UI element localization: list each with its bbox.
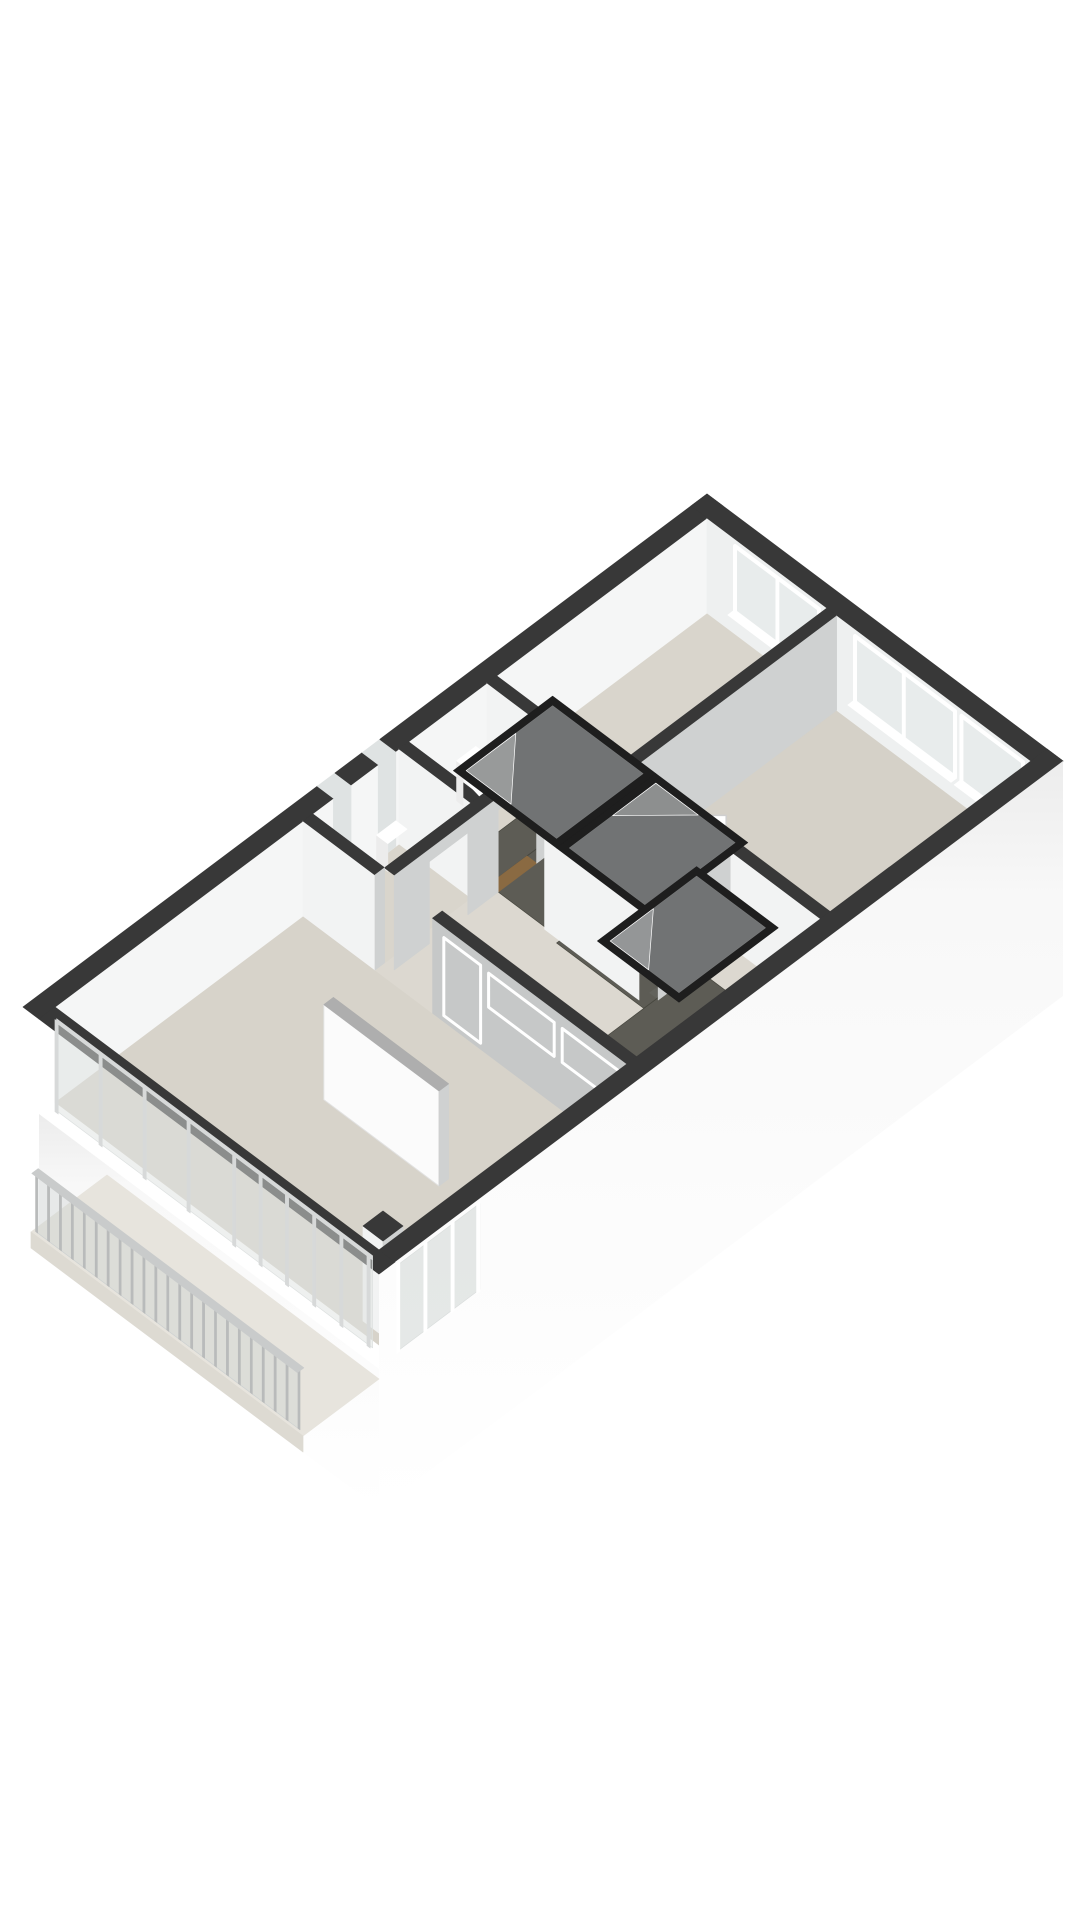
balcony-railing-balusters-12 — [179, 1279, 181, 1341]
balcony-railing-balusters-4 — [83, 1207, 85, 1269]
sw-facade-mullions-6 — [285, 1192, 288, 1286]
sw-facade-mullions-4 — [233, 1153, 236, 1247]
sw-facade-mullions-5 — [259, 1173, 262, 1267]
balcony-railing-balusters-9 — [143, 1252, 145, 1314]
balcony-railing-balusters-22 — [298, 1368, 300, 1430]
sw-facade-mullions-8 — [340, 1233, 343, 1327]
balcony-railing-balusters-15 — [215, 1306, 217, 1368]
balcony-railing-balusters-17 — [238, 1324, 240, 1386]
se-corner-glazing-mullions-3 — [477, 1201, 480, 1293]
balcony-railing-balusters-21 — [286, 1359, 288, 1421]
sw-facade-mullions-2 — [143, 1086, 146, 1180]
balcony-railing-balusters-18 — [250, 1332, 252, 1394]
balcony-railing-balusters-20 — [274, 1350, 276, 1412]
balcony-railing-balusters-0 — [36, 1171, 38, 1233]
sw-facade-mullions-1 — [99, 1053, 102, 1147]
balcony-railing-balusters-1 — [48, 1180, 50, 1242]
floorplan-page — [0, 0, 1080, 1920]
balcony-railing-balusters-7 — [119, 1234, 121, 1296]
sw-facade-mullions-0 — [55, 1020, 58, 1114]
balcony-railing-balusters-16 — [226, 1315, 228, 1377]
se-corner-glazing-mullions-2 — [451, 1221, 454, 1313]
floorplan-3d-canvas — [0, 0, 1080, 1920]
balcony-railing-balusters-3 — [71, 1198, 73, 1260]
balcony-railing-balusters-2 — [59, 1189, 61, 1251]
stub-panel-end — [439, 1084, 449, 1186]
sw-facade-mullions-7 — [313, 1213, 316, 1307]
balcony-railing-balusters-11 — [167, 1270, 169, 1332]
ne-window-1-mullion — [776, 577, 779, 645]
balcony-railing-balusters-5 — [95, 1216, 97, 1278]
sw-facade-mullions-9 — [367, 1254, 370, 1348]
se-corner-glazing-mullions-0 — [397, 1261, 400, 1353]
living-ne-wall-endcap — [375, 868, 385, 970]
balcony-railing-balusters-13 — [191, 1288, 193, 1350]
ne-window-2-mullion — [902, 671, 905, 739]
balcony-railing-balusters-14 — [203, 1297, 205, 1359]
floor-plan — [23, 494, 1063, 1509]
balcony-railing-balusters-8 — [131, 1243, 133, 1305]
sw-facade-mullions-3 — [187, 1119, 190, 1213]
se-corner-glazing-mullions-1 — [424, 1241, 427, 1333]
balcony-railing-balusters-6 — [107, 1225, 109, 1287]
balcony-railing-balusters-19 — [262, 1341, 264, 1403]
balcony-railing-balusters-10 — [155, 1261, 157, 1323]
